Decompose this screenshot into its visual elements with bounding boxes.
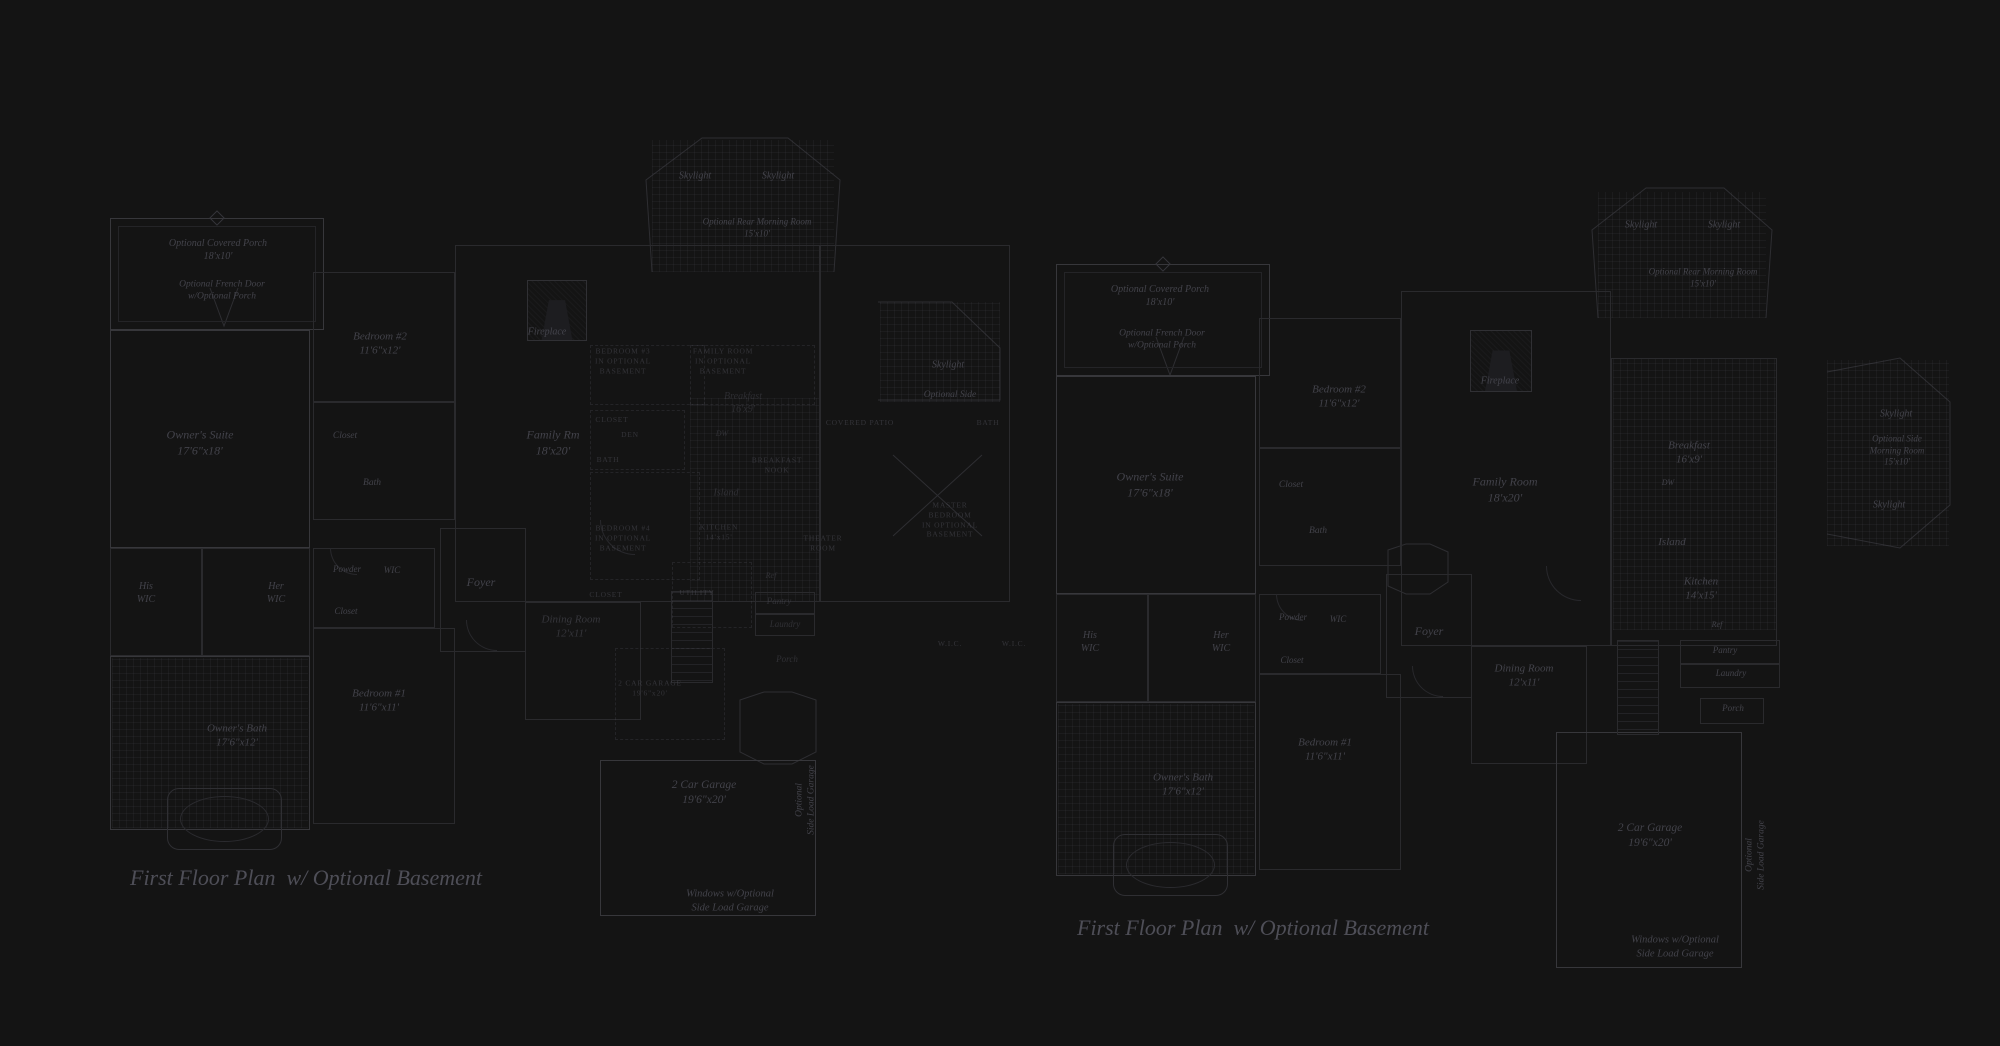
first-floor-plan-left-label-breakfast: Breakfast 16'x9' [724, 390, 762, 416]
first-floor-plan-right-label-wic: WIC [1330, 614, 1347, 626]
first-floor-plan-right-label-windows-w-optional: Windows w/Optional Side Load Garage [1631, 933, 1719, 960]
first-floor-plan-left-label-fireplace: Fireplace [528, 326, 567, 339]
first-floor-plan-right-his-wic [1056, 594, 1148, 702]
first-floor-plan-right-label-bath: Bath [1309, 525, 1327, 537]
first-floor-plan-right-label-pantry: Pantry [1713, 645, 1738, 657]
first-floor-plan-left-label-family-rm: Family Rm 18'x20' [527, 427, 580, 458]
first-floor-plan-left-label-optional-french-door: Optional French Door w/Optional Porch [179, 279, 265, 304]
plan-title-right: First Floor Plan w/ Optional Basement [1077, 915, 1429, 941]
first-floor-plan-left-label-skylight: Skylight [932, 359, 964, 372]
first-floor-plan-right-label-family-room: Family Room 18'x20' [1473, 474, 1538, 505]
first-floor-plan-right-label-kitchen: Kitchen 14'x15' [1684, 575, 1718, 604]
first-floor-plan-right-label-her: Her WIC [1212, 629, 1230, 655]
first-floor-plan-right-her-wic [1148, 594, 1256, 702]
first-floor-plan-right-label-foyer: Foyer [1415, 624, 1444, 640]
left-entry-bay-outline [740, 692, 816, 764]
first-floor-plan-left-label-kitchen: KITCHEN 14'x15' [700, 522, 739, 542]
first-floor-plan-left-her-wic [202, 548, 310, 656]
first-floor-plan-left-label-w-i-c: W.I.C. [938, 639, 962, 649]
first-floor-plan-right-label-owner-s-suite: Owner's Suite 17'6"x18' [1117, 469, 1184, 500]
first-floor-plan-right-label-bedroom-2: Bedroom #2 11'6"x12' [1312, 383, 1366, 412]
first-floor-plan-left-label-owner-s-suite: Owner's Suite 17'6"x18' [167, 427, 234, 458]
first-floor-plan-right-label-his: His WIC [1081, 629, 1099, 655]
first-floor-plan-left-basement-stairs [671, 591, 713, 683]
first-floor-plan-left-label-den: DEN [621, 430, 639, 440]
first-floor-plan-left-label-2-car-garage: 2 CAR GARAGE 19'6"x20' [618, 678, 682, 698]
first-floor-plan-left-label-bedroom-3: BEDROOM #3 IN OPTIONAL BASEMENT [595, 346, 651, 375]
first-floor-plan-left-label-owner-s-bath: Owner's Bath 17'6"x12' [207, 722, 267, 751]
first-floor-plan-right-label-skylight: Skylight [1873, 499, 1905, 512]
first-floor-plan-right-label-owner-s-bath: Owner's Bath 17'6"x12' [1153, 771, 1213, 800]
first-floor-plan-right-label-laundry: Laundry [1716, 668, 1747, 680]
first-floor-plan-left-label-dw: DW [716, 429, 728, 439]
first-floor-plan-left-label-bath: BATH [597, 455, 620, 465]
first-floor-plan-right-label-dining-room: Dining Room 12'x11' [1495, 662, 1554, 691]
first-floor-plan-right-label-skylight: Skylight [1625, 219, 1657, 232]
first-floor-plan-left-label-porch: Porch [776, 654, 798, 666]
first-floor-plan-left-bedroom-2-closet-bath [313, 402, 455, 520]
first-floor-plan-right-label-skylight: Skylight [1880, 408, 1912, 421]
first-floor-plan-left-label-dining-room: Dining Room 12'x11' [542, 613, 601, 642]
first-floor-plan-left-owners-tub [167, 788, 282, 850]
first-floor-plan-right-powder-wic-block [1259, 594, 1381, 674]
first-floor-plan-left-label-closet: CLOSET [595, 415, 628, 425]
first-floor-plan-left-label-bedroom-1: Bedroom #1 11'6"x11' [352, 687, 406, 716]
first-floor-plan-right-rear-morning-room-floor [1598, 192, 1766, 318]
first-floor-plan-left-label-bedroom-4: BEDROOM #4 IN OPTIONAL BASEMENT [595, 523, 651, 552]
first-floor-plan-right-label-bedroom-1: Bedroom #1 11'6"x11' [1298, 736, 1352, 765]
first-floor-plan-left-label-skylight: Skylight [762, 170, 794, 183]
first-floor-plan-right-label-optional-side: Optional Side Morning Room 15'x10' [1870, 433, 1925, 468]
first-floor-plan-left-label-wic: WIC [384, 565, 401, 577]
first-floor-plan-left-label-covered-patio: COVERED PATIO [826, 418, 894, 428]
first-floor-plan-left-label-closet: Closet [333, 430, 357, 442]
first-floor-plan-left-label-closet: CLOSET [589, 590, 622, 600]
first-floor-plan-left-his-wic [110, 548, 202, 656]
first-floor-plan-left-label-family-room: FAMILY ROOM IN OPTIONAL BASEMENT [693, 346, 753, 375]
first-floor-plan-left-label-laundry: Laundry [770, 619, 801, 631]
first-floor-plan-left-label-master: MASTER BEDROOM IN OPTIONAL BASEMENT [922, 501, 978, 540]
first-floor-plan-left-tub-basin [180, 796, 269, 842]
first-floor-plan-left-label-theater: THEATER ROOM [804, 533, 843, 553]
first-floor-plan-left-label-optional: Optional Side Load Garage [794, 765, 819, 835]
first-floor-plan-left-label-bedroom-2: Bedroom #2 11'6"x12' [353, 330, 407, 359]
first-floor-plan-right-label-closet: Closet [1279, 479, 1303, 491]
first-floor-plan-left-label-ref: Ref [766, 571, 777, 581]
first-floor-plan-right-bedroom-1 [1259, 674, 1401, 870]
first-floor-plan-right-label-optional-french-door: Optional French Door w/Optional Porch [1119, 328, 1205, 353]
first-floor-plan-left-label-w-i-c: W.I.C. [1002, 639, 1026, 649]
first-floor-plan-left-label-closet: Closet [334, 606, 357, 618]
first-floor-plan-left-label-powder: Powder [333, 564, 361, 576]
first-floor-plan-right-label-ref: Ref [1712, 620, 1723, 630]
first-floor-plan-right-label-optional: Optional Side Load Garage [1744, 820, 1769, 890]
first-floor-plan-right-label-optional-rear-morning-room: Optional Rear Morning Room 15'x10' [1649, 266, 1758, 289]
first-floor-plan-right-tub-basin [1126, 842, 1215, 888]
first-floor-plan-left-label-pantry: Pantry [767, 596, 792, 608]
first-floor-plan-left-label-optional-rear-morning-room: Optional Rear Morning Room 15'x10' [703, 216, 812, 239]
floor-plan-canvas: First Floor Plan w/ Optional Basement Fi… [0, 0, 2000, 1046]
first-floor-plan-left-label-foyer: Foyer [467, 575, 496, 591]
first-floor-plan-left-label-breakfast: BREAKFAST NOOK [752, 455, 802, 475]
first-floor-plan-left-label-optional-covered-porch: Optional Covered Porch 18'x10' [169, 237, 267, 263]
first-floor-plan-right-label-2-car-garage: 2 Car Garage 19'6"x20' [1618, 821, 1683, 851]
first-floor-plan-right-owners-tub [1113, 834, 1228, 896]
plan-title-left: First Floor Plan w/ Optional Basement [130, 865, 482, 891]
first-floor-plan-left-label-bath: Bath [363, 477, 381, 489]
first-floor-plan-right-basement-stairs [1617, 640, 1659, 735]
first-floor-plan-right-label-optional-covered-porch: Optional Covered Porch 18'x10' [1111, 283, 1209, 309]
first-floor-plan-left-bedroom-1 [313, 628, 455, 824]
first-floor-plan-right-label-breakfast: Breakfast 16'x9' [1668, 439, 1710, 468]
first-floor-plan-right-bedroom-2-closet-bath [1259, 448, 1401, 566]
first-floor-plan-right-label-dw: DW [1662, 478, 1674, 488]
first-floor-plan-left-powder-wic-block [313, 548, 435, 628]
first-floor-plan-left-label-bath: BATH [977, 418, 1000, 428]
first-floor-plan-left-label-skylight: Skylight [679, 170, 711, 183]
first-floor-plan-right-label-fireplace: Fireplace [1481, 375, 1520, 388]
first-floor-plan-right-label-powder: Powder [1279, 612, 1307, 624]
first-floor-plan-left-label-optional-side: Optional Side [924, 389, 977, 401]
first-floor-plan-left-label-windows-w-optional: Windows w/Optional Side Load Garage [686, 887, 774, 914]
first-floor-plan-left-label-his: His WIC [137, 580, 155, 606]
first-floor-plan-right-label-closet: Closet [1280, 655, 1303, 667]
first-floor-plan-left-label-island: Island [714, 487, 739, 500]
first-floor-plan-left-label-her: Her WIC [267, 580, 285, 606]
first-floor-plan-right-label-skylight: Skylight [1708, 219, 1740, 232]
first-floor-plan-right-label-porch: Porch [1722, 703, 1744, 715]
first-floor-plan-left-label-utility: UTILITY [679, 588, 714, 598]
first-floor-plan-right-label-island: Island [1658, 535, 1686, 549]
first-floor-plan-left-label-2-car-garage: 2 Car Garage 19'6"x20' [672, 778, 737, 808]
